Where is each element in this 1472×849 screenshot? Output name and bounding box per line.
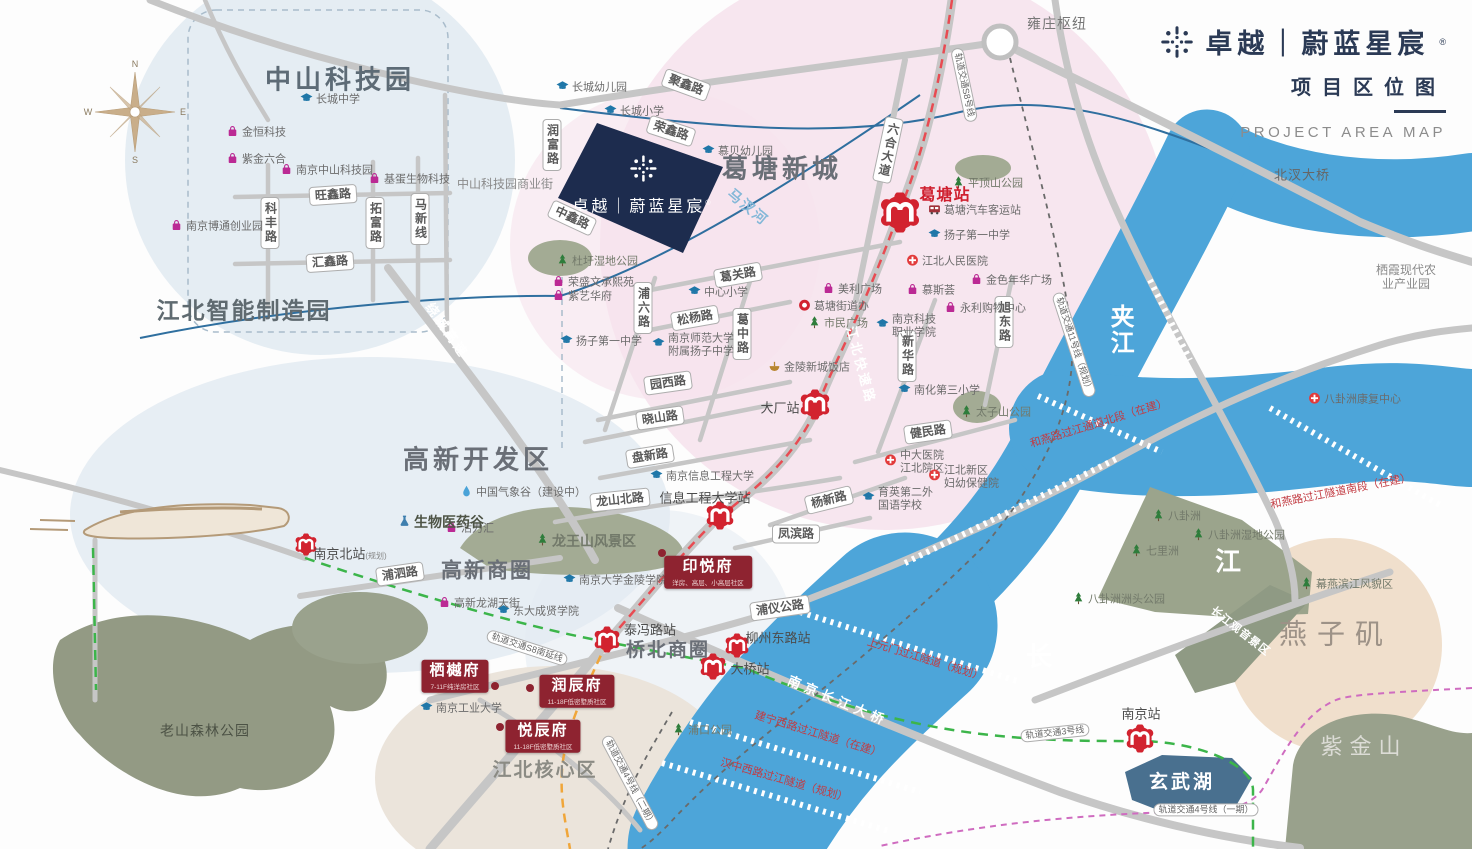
poi-label: 基蛋生物科技 [384, 174, 450, 187]
hospital-icon [928, 469, 941, 486]
poi-label: 长城中学 [316, 94, 360, 107]
poi-park: 八卦洲 [1152, 509, 1201, 526]
park-icon [1130, 544, 1143, 561]
shop-icon [552, 289, 565, 306]
compass-w: W [84, 107, 93, 117]
poi-label: 杜圩湿地公园 [572, 256, 638, 269]
poi-label: 南京信息工程大学 [666, 471, 754, 484]
poi-hospital: 江北新区 妇幼保健院 [928, 464, 999, 489]
poi-label: 太子山公园 [976, 407, 1031, 420]
bio-icon [398, 514, 411, 530]
poi-park: 杜圩湿地公园 [556, 254, 638, 271]
poi-label: 扬子第一中学 [576, 336, 642, 349]
brand-name: 卓越｜蔚蓝星宸 [1205, 22, 1429, 61]
poi-bus: 葛塘汽车客运站 [928, 203, 1021, 220]
poi-park: 龙王山风景区 [536, 533, 636, 549]
poi-shop: 南京中山科技园 [280, 163, 373, 180]
shop-icon [438, 596, 451, 613]
park-icon [1152, 509, 1165, 526]
poi-label: 金陵新城饭店 [784, 362, 850, 375]
school-icon [420, 701, 433, 718]
poi-label: 金恒科技 [242, 127, 286, 140]
poi-label: 金色年华广场 [986, 275, 1052, 288]
metro-station-icon [700, 654, 726, 685]
shop-icon [970, 273, 983, 290]
school-icon [652, 337, 665, 354]
poi-label: 八卦洲 [1168, 511, 1201, 524]
poi-label: 中国气象谷（建设中） [476, 487, 586, 500]
project-badge: 悦辰府11-18F低密墅质社区 [505, 720, 580, 753]
poi-hotel: 金陵新城饭店 [768, 360, 850, 377]
poi-shop: 基蛋生物科技 [368, 172, 450, 189]
map-subtitle-en: PROJECT AREA MAP [1159, 124, 1446, 141]
hospital-icon [906, 254, 919, 271]
school-icon [563, 573, 576, 590]
poi-label: 中心小学 [704, 287, 748, 300]
road-label: 科丰路 [261, 197, 280, 249]
poi-label: 荣盛文承熙苑 [568, 277, 634, 290]
hospital-icon [1308, 392, 1321, 409]
rail-line-label: 轨道交通4号线（一期） [1153, 803, 1258, 816]
shop-icon [280, 163, 293, 180]
poi-label: 南京师范大学 附属扬子中学 [668, 332, 734, 357]
park-icon [556, 254, 569, 271]
project-badge-subtitle: 7-11F纯洋房社区 [429, 680, 480, 690]
road-label: 葛中路 [733, 308, 752, 360]
school-icon [556, 80, 569, 97]
poi-park: 浦口公园 [672, 723, 732, 740]
bus-icon [928, 203, 941, 220]
poi-label: 东大成贤学院 [513, 606, 579, 619]
poi-school: 南京师范大学 附属扬子中学 [652, 332, 734, 357]
shop-icon [944, 301, 957, 318]
poi-school: 扬子第一中学 [928, 228, 1010, 245]
project-badge-subtitle: 11-18F低密墅质社区 [547, 695, 606, 705]
poi-label: 紫艺华府 [568, 291, 612, 304]
project-dot [526, 684, 534, 692]
project-badge-title: 润辰府 [547, 678, 606, 695]
project-badge-title: 栖樾府 [429, 663, 480, 680]
compass-e: E [180, 107, 186, 117]
park-icon [1192, 528, 1205, 545]
project-badge: 印悦府洋房、高层、小高层社区 [664, 556, 752, 589]
project-badge: 润辰府11-18F低密墅质社区 [539, 675, 614, 708]
road-label: 润富路 [543, 119, 562, 171]
shop-icon [368, 172, 381, 189]
poi-label: 葛塘汽车客运站 [944, 205, 1021, 218]
hospital-icon [884, 454, 897, 471]
school-icon [928, 228, 941, 245]
title-underline [1394, 110, 1446, 113]
road-label: 拓富路 [366, 197, 385, 249]
poi-shop: 南京博通创业园 [170, 219, 263, 236]
map-subtitle-cn: 项目区位图 [1159, 71, 1446, 100]
poi-shop: 金色年华广场 [970, 273, 1052, 290]
poi-hospital: 八卦洲康复中心 [1308, 392, 1401, 409]
poi-label: 高新龙湖天街 [454, 598, 520, 611]
poi-shop: 高新龙湖天街 [438, 596, 520, 613]
school-icon [300, 92, 313, 109]
poi-label: 江北新区 妇幼保健院 [944, 464, 999, 489]
school-icon [862, 491, 875, 508]
park-icon [1300, 577, 1313, 594]
poi-label: 葛塘街道办 [814, 301, 869, 314]
poi-shop: 紫金六合 [226, 152, 286, 169]
poi-label: 浦口公园 [688, 725, 732, 738]
metro-station-icon [800, 390, 830, 425]
poi-label: 江北人民医院 [922, 256, 988, 269]
metro-station-label: 信息工程大学站 [659, 488, 750, 507]
road-label: 旺鑫路 [308, 184, 357, 206]
park-icon [1072, 592, 1085, 609]
map-title-block: 卓越｜蔚蓝星宸® 项目区位图 PROJECT AREA MAP [1159, 22, 1446, 141]
poi-label: 南京大学金陵学院 [579, 575, 667, 588]
poi-park: 七里洲 [1130, 544, 1179, 561]
compass-n: N [132, 59, 139, 69]
shop-icon [170, 219, 183, 236]
hotel-icon [768, 360, 781, 377]
poi-label: 南京科技 职业学院 [892, 313, 936, 338]
poi-school: 扬子第一中学 [560, 334, 642, 351]
school-icon [688, 285, 701, 302]
park-icon [960, 405, 973, 422]
park-icon [672, 723, 685, 740]
poi-label: 幕燕滨江风貌区 [1316, 579, 1393, 592]
project-badge-title: 印悦府 [672, 559, 744, 576]
poi-label: 南京中山科技园 [296, 165, 373, 178]
yongzhuang-interchange [984, 26, 1016, 58]
poi-label: 七里洲 [1146, 546, 1179, 559]
poi-school: 育英第二外 国语学校 [862, 486, 933, 511]
poi-label: 南化第三小学 [914, 385, 980, 398]
zhuoyue-logo-icon [1159, 24, 1195, 60]
poi-label: 长城小学 [620, 106, 664, 119]
road-label: 马新线 [411, 193, 430, 245]
poi-shop: 永利购物中心 [944, 301, 1026, 318]
project-dot [496, 723, 504, 731]
metro-station-label: 葛塘站 [919, 181, 970, 205]
poi-school: 南化第三小学 [898, 383, 980, 400]
poi-park: 太子山公园 [960, 405, 1031, 422]
school-icon [702, 144, 715, 161]
school-icon [560, 334, 573, 351]
project-badge-subtitle: 11-18F低密墅质社区 [513, 740, 572, 750]
metro-station-label: 南京北站(规划) [313, 544, 386, 563]
poi-label: 长城幼儿园 [572, 82, 627, 95]
poi-shop: 紫艺华府 [552, 289, 612, 306]
road-label: 浦六路 [634, 282, 653, 334]
school-icon [898, 383, 911, 400]
road-label: 汇鑫路 [305, 251, 354, 273]
school-icon [604, 104, 617, 121]
school-icon [650, 469, 663, 486]
project-badge-title: 悦辰府 [513, 723, 572, 740]
metro-station-icon [880, 193, 920, 238]
poi-weather: 中国气象谷（建设中） [460, 485, 586, 502]
poi-label: 南京工业大学 [436, 703, 502, 716]
poi-park: 八卦洲湿地公园 [1192, 528, 1285, 545]
poi-school: 慕贝幼儿园 [702, 144, 773, 161]
poi-school: 长城幼儿园 [556, 80, 627, 97]
poi-bio: 生物医药谷 [398, 514, 484, 530]
metro-station-label: 柳州东路站 [745, 628, 810, 647]
poi-label: 八卦洲湿地公园 [1208, 530, 1285, 543]
poi-school: 南京工业大学 [420, 701, 502, 718]
poi-label: 永利购物中心 [960, 303, 1026, 316]
poi-school: 中心小学 [688, 285, 748, 302]
poi-label: 龙王山风景区 [552, 533, 636, 549]
poi-school: 南京大学金陵学院 [563, 573, 667, 590]
poi-school: 长城中学 [300, 92, 360, 109]
poi-label: 慕贝幼儿园 [718, 146, 773, 159]
metro-station-label: 泰冯路站 [624, 620, 676, 639]
shop-icon [822, 282, 835, 299]
poi-label: 扬子第一中学 [944, 230, 1010, 243]
park-icon [808, 316, 821, 333]
shop-icon [226, 125, 239, 142]
poi-label: 八卦洲康复中心 [1324, 394, 1401, 407]
project-badge: 栖樾府7-11F纯洋房社区 [421, 660, 488, 693]
poi-school: 长城小学 [604, 104, 664, 121]
metro-station-label: 大厂站 [760, 398, 799, 417]
metro-station-icon [1126, 725, 1154, 758]
poi-school: 南京科技 职业学院 [876, 313, 936, 338]
poi-school: 南京信息工程大学 [650, 469, 754, 486]
weather-icon [460, 485, 473, 502]
poi-label: 平顶山公园 [968, 178, 1023, 191]
park-icon [536, 533, 549, 549]
project-badge-subtitle: 洋房、高层、小高层社区 [672, 576, 744, 586]
compass-s: S [132, 155, 138, 165]
metro-station-label: 南京站 [1121, 704, 1160, 723]
poi-shop: 金恒科技 [226, 125, 286, 142]
metro-station-label: 大桥站 [730, 659, 769, 678]
shop-icon [226, 152, 239, 169]
shop-icon [906, 283, 919, 300]
poi-hospital: 江北人民医院 [906, 254, 988, 271]
poi-label: 美利广场 [838, 284, 882, 297]
poi-label: 生物医药谷 [414, 514, 484, 530]
gov-icon [798, 299, 811, 316]
poi-label: 市民广场 [824, 318, 868, 331]
poi-label: 八卦洲洲头公园 [1088, 594, 1165, 607]
poi-park: 八卦洲洲头公园 [1072, 592, 1165, 609]
poi-park: 幕燕滨江风貌区 [1300, 577, 1393, 594]
road-label: 凤滨路 [772, 525, 820, 544]
project-area-map: 卓越｜蔚蓝星宸® 项目区位图 PROJECT AREA MAP N E S W … [0, 0, 1472, 849]
poi-label: 慕斯荟 [922, 285, 955, 298]
poi-label: 育英第二外 国语学校 [878, 486, 933, 511]
poi-gov: 葛塘街道办 [798, 299, 869, 316]
poi-shop: 慕斯荟 [906, 283, 955, 300]
poi-label: 南京博通创业园 [186, 221, 263, 234]
poi-park: 市民广场 [808, 316, 868, 333]
school-icon [876, 318, 889, 335]
project-dot [491, 682, 499, 690]
metro-station-icon [594, 627, 620, 658]
registered-mark: ® [1439, 37, 1446, 47]
poi-shop: 美利广场 [822, 282, 882, 299]
